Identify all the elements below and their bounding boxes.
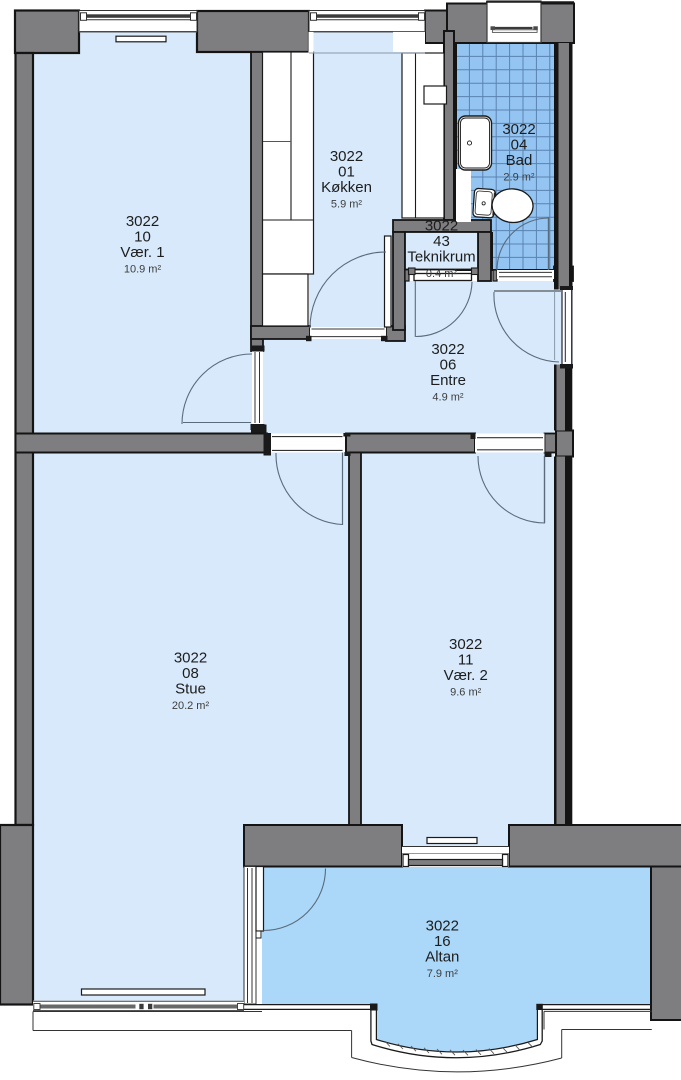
svg-text:302208Stue20.2 m²: 302208Stue20.2 m² — [172, 650, 210, 713]
svg-text:302206Entre4.9 m²: 302206Entre4.9 m² — [430, 341, 466, 404]
svg-text:302211Vær. 29.6 m²: 302211Vær. 29.6 m² — [444, 636, 488, 699]
svg-text:302210Vær. 110.9 m²: 302210Vær. 110.9 m² — [120, 213, 164, 276]
svg-text:302216Altan7.9 m²: 302216Altan7.9 m² — [425, 917, 459, 980]
svg-text:302204Bad2.9 m²: 302204Bad2.9 m² — [502, 121, 535, 184]
